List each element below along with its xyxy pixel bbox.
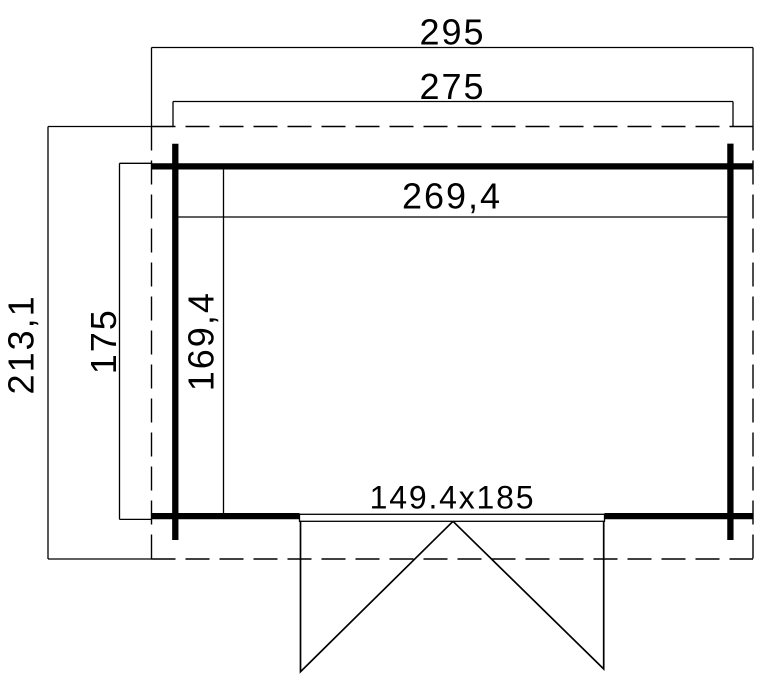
svg-text:269,4: 269,4 [402,176,502,217]
svg-text:213,1: 213,1 [1,294,42,394]
svg-text:149.4x185: 149.4x185 [370,480,536,516]
svg-text:295: 295 [419,12,485,53]
svg-text:175: 175 [83,308,124,374]
svg-text:169,4: 169,4 [181,291,222,391]
svg-text:275: 275 [419,66,485,107]
